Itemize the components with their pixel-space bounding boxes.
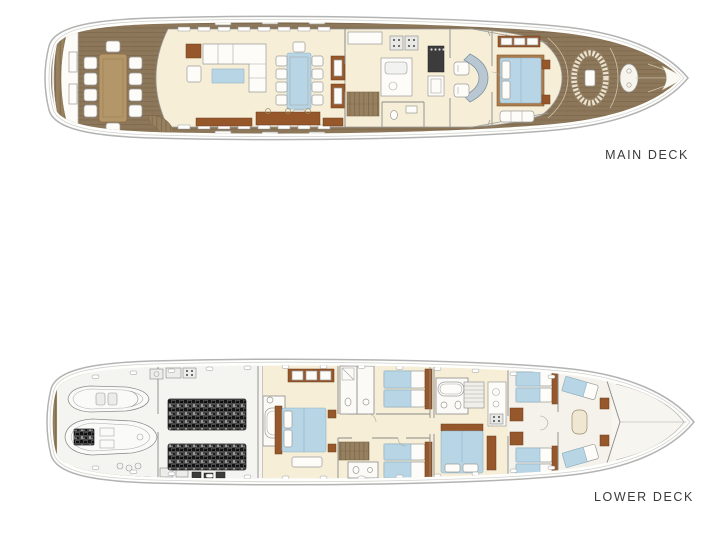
toilet: [455, 401, 461, 409]
crew-locker: [510, 432, 523, 445]
lower-deck-plan: LOWER DECK: [47, 356, 697, 504]
nightstand: [542, 60, 550, 69]
main-deck-plan: MAIN DECK: [45, 12, 693, 162]
toilet: [391, 111, 398, 120]
vip-sofa: [292, 457, 322, 467]
starboard-engine: [168, 399, 246, 430]
foredeck-table: [585, 70, 595, 86]
washbasin: [363, 399, 369, 405]
nightstand: [542, 95, 550, 104]
headboard: [425, 369, 432, 409]
pillow: [502, 81, 510, 99]
helm-chair: [454, 62, 469, 75]
pillow: [284, 411, 292, 428]
guest-bathroom: [348, 462, 378, 478]
deck-plan-canvas: MAIN DECK: [0, 0, 718, 533]
pillow: [463, 464, 478, 472]
bed-footboard: [441, 424, 483, 431]
lower-deck-label: LOWER DECK: [594, 490, 694, 504]
galley-appliance: [390, 36, 403, 50]
forward-section: [436, 378, 506, 473]
galley-appliance: [405, 36, 418, 50]
helm-chair: [454, 84, 469, 97]
nightstand: [328, 444, 336, 452]
pillow: [284, 430, 292, 447]
port-engine: [168, 444, 246, 470]
crew-locker: [600, 435, 609, 446]
bow-sunpad: [620, 64, 638, 92]
toilet: [345, 398, 351, 406]
washbasin: [406, 106, 417, 113]
pillow: [445, 464, 460, 472]
headboard: [425, 442, 432, 480]
crew-locker: [510, 408, 523, 421]
salon-armchair: [187, 66, 201, 82]
galley-sink: [385, 62, 407, 74]
galley-cabinet: [348, 32, 382, 44]
tender-engine: [74, 429, 94, 445]
coffee-table: [212, 69, 244, 83]
washbasin: [441, 402, 447, 408]
dining-table: [287, 53, 311, 109]
crew-locker: [600, 398, 609, 409]
crew-appliance: [490, 414, 503, 424]
washbasin: [368, 468, 373, 473]
master-sofa: [500, 111, 534, 122]
main-deck-label: MAIN DECK: [605, 148, 689, 162]
vip-headboard: [275, 406, 282, 454]
crew-table: [572, 410, 587, 434]
toilet: [353, 467, 359, 474]
washbasin: [267, 397, 273, 403]
wardrobe: [487, 436, 496, 470]
stern-locker: [69, 84, 77, 104]
nightstand: [328, 410, 336, 418]
stern-locker: [69, 52, 77, 72]
salon-cabinet: [186, 44, 201, 58]
pillow: [502, 61, 510, 79]
deck-plan-drawing: MAIN DECK: [0, 0, 718, 533]
